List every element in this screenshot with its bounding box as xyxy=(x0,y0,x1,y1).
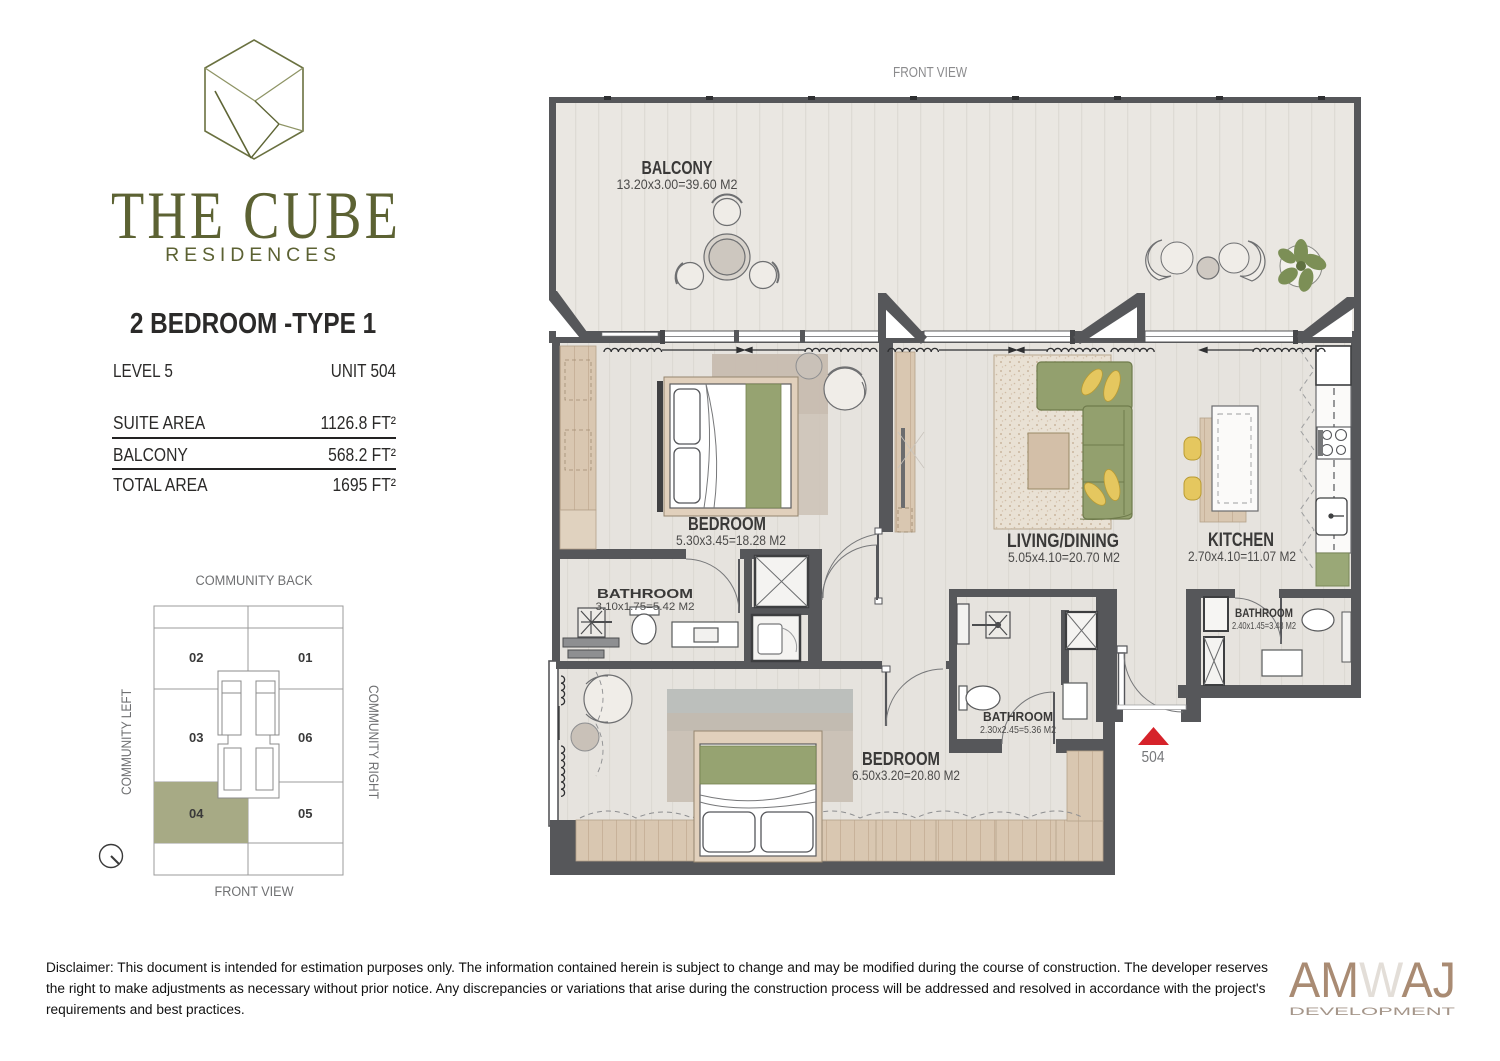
svg-text:COMMUNITY RIGHT: COMMUNITY RIGHT xyxy=(366,685,381,799)
svg-text:504: 504 xyxy=(1142,749,1165,766)
svg-text:FRONT VIEW: FRONT VIEW xyxy=(215,884,294,899)
svg-text:01: 01 xyxy=(298,650,312,665)
svg-text:BATHROOM: BATHROOM xyxy=(983,710,1053,724)
svg-text:04: 04 xyxy=(189,806,204,821)
svg-text:5.30x3.45=18.28 M2: 5.30x3.45=18.28 M2 xyxy=(676,533,786,548)
svg-text:5.05x4.10=20.70 M2: 5.05x4.10=20.70 M2 xyxy=(1008,550,1120,565)
svg-text:BATHROOM: BATHROOM xyxy=(597,586,693,601)
svg-text:AMWAJ: AMWAJ xyxy=(1289,952,1456,1008)
svg-text:DEVELOPMENT: DEVELOPMENT xyxy=(1289,1006,1456,1018)
svg-text:BATHROOM: BATHROOM xyxy=(1235,606,1293,620)
svg-text:02: 02 xyxy=(189,650,203,665)
svg-text:BEDROOM: BEDROOM xyxy=(688,514,766,534)
svg-text:COMMUNITY BACK: COMMUNITY BACK xyxy=(196,573,313,588)
svg-text:2.70x4.10=11.07 M2: 2.70x4.10=11.07 M2 xyxy=(1188,549,1296,564)
svg-text:3.10x1.75=5.42 M2: 3.10x1.75=5.42 M2 xyxy=(596,601,695,613)
svg-text:KITCHEN: KITCHEN xyxy=(1208,530,1274,551)
svg-text:6.50x3.20=20.80 M2: 6.50x3.20=20.80 M2 xyxy=(852,768,960,783)
svg-text:03: 03 xyxy=(189,730,203,745)
svg-text:2.30x2.45=5.36 M2: 2.30x2.45=5.36 M2 xyxy=(980,724,1056,736)
svg-text:BEDROOM: BEDROOM xyxy=(862,749,940,769)
svg-text:FRONT VIEW: FRONT VIEW xyxy=(893,64,968,81)
svg-text:2.40x1.45=3.48 M2: 2.40x1.45=3.48 M2 xyxy=(1232,621,1296,632)
svg-text:05: 05 xyxy=(298,806,312,821)
svg-text:COMMUNITY LEFT: COMMUNITY LEFT xyxy=(119,689,134,795)
svg-text:LIVING/DINING: LIVING/DINING xyxy=(1007,531,1119,552)
svg-text:13.20x3.00=39.60 M2: 13.20x3.00=39.60 M2 xyxy=(617,176,738,192)
svg-text:BALCONY: BALCONY xyxy=(642,157,714,178)
svg-text:06: 06 xyxy=(298,730,312,745)
